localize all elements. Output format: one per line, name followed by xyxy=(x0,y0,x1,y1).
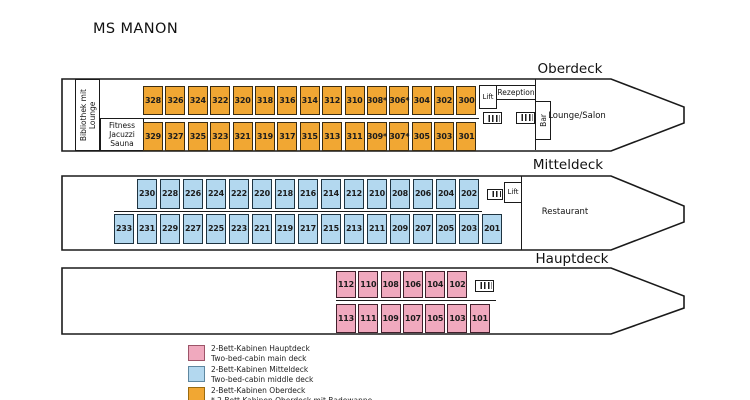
cabin-320: 320 xyxy=(233,86,253,116)
cabin-103: 103 xyxy=(447,304,467,333)
cabin-309: 309* xyxy=(367,122,387,152)
cabin-322: 322 xyxy=(210,86,230,116)
cabin-323: 323 xyxy=(210,122,230,152)
cabin-113: 113 xyxy=(336,304,356,333)
cabin-231: 231 xyxy=(137,214,157,245)
legend-label: 2-Bett-Kabinen MitteldeckTwo-bed-cabin m… xyxy=(211,365,313,384)
cabin-202: 202 xyxy=(459,179,479,210)
bibliothek-label: Bibliothek mit Lounge xyxy=(79,89,97,141)
cabin-223: 223 xyxy=(229,214,249,245)
cabin-215: 215 xyxy=(321,214,341,245)
cabin-302: 302 xyxy=(434,86,454,116)
lounge-salon-area: Lounge/Salon xyxy=(545,109,609,123)
cabin-209: 209 xyxy=(390,214,410,245)
cabin-228: 228 xyxy=(160,179,180,210)
cabin-211: 211 xyxy=(367,214,387,245)
lift-label: Lift xyxy=(483,93,494,102)
cabin-112: 112 xyxy=(336,271,356,298)
cabin-317: 317 xyxy=(277,122,297,152)
cabin-313: 313 xyxy=(322,122,342,152)
cabin-203: 203 xyxy=(459,214,479,245)
corridor-wall xyxy=(100,118,479,119)
cabin-307: 307* xyxy=(389,122,409,152)
deck-title-oberdeck: Oberdeck xyxy=(515,61,625,77)
cabin-105: 105 xyxy=(425,304,445,333)
cabin-304: 304 xyxy=(412,86,432,116)
cabin-314: 314 xyxy=(300,86,320,116)
cabin-301: 301 xyxy=(456,122,476,152)
cabin-206: 206 xyxy=(413,179,433,210)
cabin-217: 217 xyxy=(298,214,318,245)
cabin-219: 219 xyxy=(275,214,295,245)
cabin-225: 225 xyxy=(206,214,226,245)
cabin-107: 107 xyxy=(403,304,423,333)
legend-entry: 2-Bett-Kabinen MitteldeckTwo-bed-cabin m… xyxy=(188,365,372,386)
cabin-227: 227 xyxy=(183,214,203,245)
cabin-329: 329 xyxy=(143,122,163,152)
cabin-316: 316 xyxy=(277,86,297,116)
stairs-icon xyxy=(475,280,494,292)
cabin-303: 303 xyxy=(434,122,454,152)
corridor-wall xyxy=(114,211,482,212)
cabin-327: 327 xyxy=(165,122,185,152)
lounge-salon-label: Lounge/Salon xyxy=(548,112,606,121)
cabin-305: 305 xyxy=(412,122,432,152)
legend: 2-Bett-Kabinen HauptdeckTwo-bed-cabin ma… xyxy=(188,344,372,400)
lift-label: Lift xyxy=(508,188,519,197)
legend-entry: 2-Bett-Kabinen HauptdeckTwo-bed-cabin ma… xyxy=(188,344,372,365)
legend-label: 2-Bett-Kabinen HauptdeckTwo-bed-cabin ma… xyxy=(211,344,310,363)
legend-entry: 2-Bett-Kabinen Oberdeck* 2-Bett Kabinen … xyxy=(188,386,372,400)
cabin-224: 224 xyxy=(206,179,226,210)
cabin-204: 204 xyxy=(436,179,456,210)
cabin-315: 315 xyxy=(300,122,320,152)
bibliothek-room: Bibliothek mit Lounge xyxy=(75,79,100,151)
rezeption-room: Rezeption xyxy=(496,85,536,100)
cabin-306: 306* xyxy=(389,86,409,116)
cabin-207: 207 xyxy=(413,214,433,245)
legend-swatch xyxy=(188,387,205,400)
cabin-233: 233 xyxy=(114,214,134,245)
legend-label: 2-Bett-Kabinen Oberdeck* 2-Bett Kabinen … xyxy=(211,386,372,400)
cabin-222: 222 xyxy=(229,179,249,210)
mitteldeck-cabin-row-top: 2302282262242222202182162142122102082062… xyxy=(137,179,479,210)
cabin-104: 104 xyxy=(425,271,445,298)
cabin-109: 109 xyxy=(381,304,401,333)
oberdeck-cabin-row-top: 328326324322320318316314312310308*306*30… xyxy=(143,86,476,116)
hauptdeck-cabin-row-bottom: 113111109107105103101 xyxy=(336,304,490,333)
cabin-230: 230 xyxy=(137,179,157,210)
cabin-229: 229 xyxy=(160,214,180,245)
cabin-300: 300 xyxy=(456,86,476,116)
fitness-label: Fitness Jacuzzi Sauna xyxy=(109,121,135,148)
deck-title-hauptdeck: Hauptdeck xyxy=(517,251,627,267)
cabin-111: 111 xyxy=(358,304,378,333)
legend-swatch xyxy=(188,366,205,382)
oberdeck-cabin-row-bottom: 329327325323321319317315313311309*307*30… xyxy=(143,122,476,152)
cabin-220: 220 xyxy=(252,179,272,210)
cabin-101: 101 xyxy=(470,304,490,333)
cabin-201: 201 xyxy=(482,214,502,245)
cabin-106: 106 xyxy=(403,271,423,298)
fitness-room: Fitness Jacuzzi Sauna xyxy=(100,118,144,151)
cabin-212: 212 xyxy=(344,179,364,210)
cabin-324: 324 xyxy=(188,86,208,116)
ship-title: MS MANON xyxy=(93,21,178,37)
cabin-311: 311 xyxy=(345,122,365,152)
cabin-226: 226 xyxy=(183,179,203,210)
cabin-321: 321 xyxy=(233,122,253,152)
lift-room-mitteldeck: Lift xyxy=(504,182,522,203)
lift-room-oberdeck: Lift xyxy=(479,85,497,109)
stairs-icon xyxy=(483,112,502,124)
cabin-312: 312 xyxy=(322,86,342,116)
mitteldeck-cabin-row-bottom: 2332312292272252232212192172152132112092… xyxy=(114,214,502,245)
cabin-308: 308* xyxy=(367,86,387,116)
cabin-214: 214 xyxy=(321,179,341,210)
cabin-318: 318 xyxy=(255,86,275,116)
restaurant-area: Restaurant xyxy=(521,205,609,219)
cabin-213: 213 xyxy=(344,214,364,245)
cabin-208: 208 xyxy=(390,179,410,210)
deck-title-mitteldeck: Mitteldeck xyxy=(513,157,623,173)
restaurant-label: Restaurant xyxy=(542,208,589,217)
rezeption-label: Rezeption xyxy=(497,88,534,97)
cabin-110: 110 xyxy=(358,271,378,298)
cabin-108: 108 xyxy=(381,271,401,298)
cabin-328: 328 xyxy=(143,86,163,116)
hauptdeck-cabin-row-top: 112110108106104102 xyxy=(336,271,467,298)
cabin-216: 216 xyxy=(298,179,318,210)
cabin-210: 210 xyxy=(367,179,387,210)
cabin-218: 218 xyxy=(275,179,295,210)
cabin-325: 325 xyxy=(188,122,208,152)
legend-swatch xyxy=(188,345,205,361)
stairs-icon xyxy=(487,189,503,200)
cabin-221: 221 xyxy=(252,214,272,245)
cabin-102: 102 xyxy=(447,271,467,298)
stairs-icon xyxy=(516,112,535,124)
cabin-205: 205 xyxy=(436,214,456,245)
cabin-310: 310 xyxy=(345,86,365,116)
cabin-326: 326 xyxy=(165,86,185,116)
deck-plan: MS MANON Oberdeck Bibliothek mit Lounge … xyxy=(0,0,750,400)
cabin-319: 319 xyxy=(255,122,275,152)
corridor-wall xyxy=(336,300,496,301)
